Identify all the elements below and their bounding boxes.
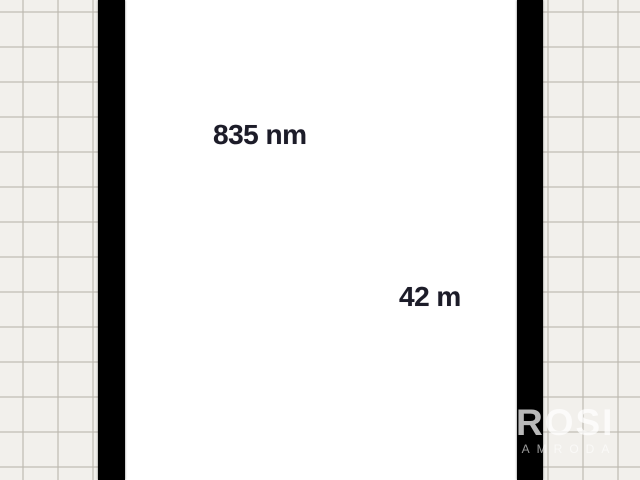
- room-interior[interactable]: [125, 0, 517, 480]
- dimension-label-42m[interactable]: 42 m: [399, 283, 461, 311]
- dimension-label-835nm[interactable]: 835 nm: [213, 121, 307, 149]
- wall-right[interactable]: [517, 0, 543, 480]
- wall-left[interactable]: [98, 0, 125, 480]
- floorplan-canvas[interactable]: 835 nm 42 m ROSI LAMRODA: [0, 0, 640, 480]
